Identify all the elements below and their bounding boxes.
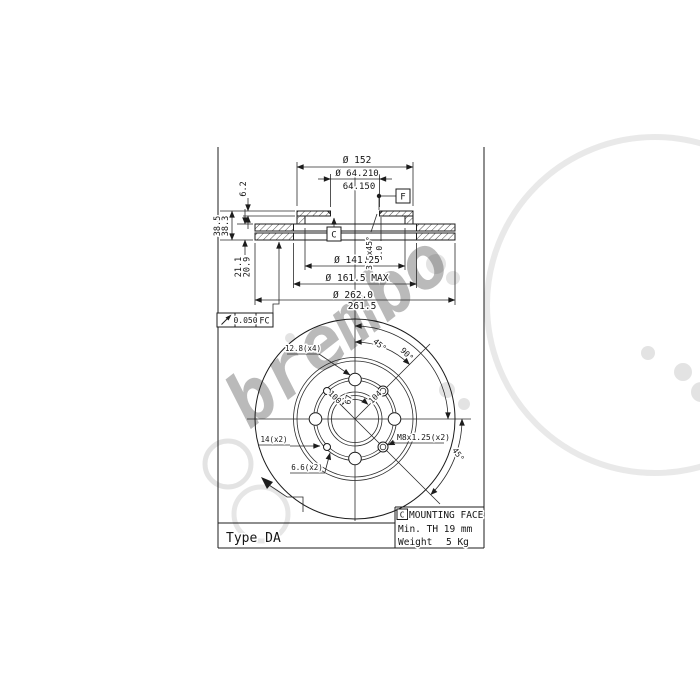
watermark-ring xyxy=(205,441,251,487)
angle-se-label: 45° xyxy=(450,446,466,463)
dim-height-min: 38.3 xyxy=(221,216,231,236)
tolerance-datum: FC xyxy=(259,317,269,327)
brembo-watermark: brembo xyxy=(205,137,700,541)
dim-pcd-left: 100 xyxy=(326,389,343,406)
dim-inner-diameter: Ø 141.25 xyxy=(334,255,380,266)
drawing-svg: brembo xyxy=(0,0,700,700)
title-block: Type DA xyxy=(226,531,281,546)
dim-bore-max: Ø 64.210 xyxy=(335,168,378,179)
datum-c-label: C xyxy=(331,231,336,241)
watermark-text: brembo xyxy=(208,217,465,443)
brake-disc-technical-drawing: brembo xyxy=(0,0,700,700)
datum-f-dot xyxy=(377,194,381,198)
datum-c: C xyxy=(327,218,341,241)
datum-f-label: F xyxy=(400,193,405,203)
mounting-face-label: MOUNTING FACE xyxy=(409,510,484,521)
dim-stud-holes: 12.8(x4) xyxy=(285,344,321,353)
dim-thickness-min: 20.9 xyxy=(243,257,253,277)
dim-screw-holes: 6.6(x2) xyxy=(291,463,323,472)
watermark-swirl xyxy=(487,137,700,473)
dim-thread-holes: M8x1.25(x2) xyxy=(397,433,450,442)
min-thickness-label: Min. TH 19 mm xyxy=(398,524,473,535)
weight-label: Weight xyxy=(398,537,432,548)
dim-hat-diameter: Ø 152 xyxy=(343,155,372,166)
weight-value: 5 Kg xyxy=(446,537,469,548)
type-label: Type DA xyxy=(226,531,281,546)
dim-outer-diameter-min: 261.5 xyxy=(348,301,377,312)
dim-counterbore: 14(x2) xyxy=(260,435,287,444)
dim-band-inner-diameter: Ø 161.5 MAX xyxy=(326,273,389,284)
dim-outer-diameter-max: Ø 262.0 xyxy=(333,290,373,301)
dim-bore-min: 64.150 xyxy=(343,182,376,192)
tolerance-frame: 0.050 FC xyxy=(217,242,279,327)
dim-flange-thickness: 6.2 xyxy=(239,181,249,196)
dim-hub: 67 xyxy=(343,394,354,405)
tolerance-value: 0.050 xyxy=(233,316,257,325)
datum-f: F xyxy=(377,189,410,210)
angle-e-label: 90° xyxy=(398,346,415,363)
mounting-face-datum: C xyxy=(400,511,405,520)
info-box: C MOUNTING FACE Min. TH 19 mm Weight 5 K… xyxy=(397,509,484,548)
